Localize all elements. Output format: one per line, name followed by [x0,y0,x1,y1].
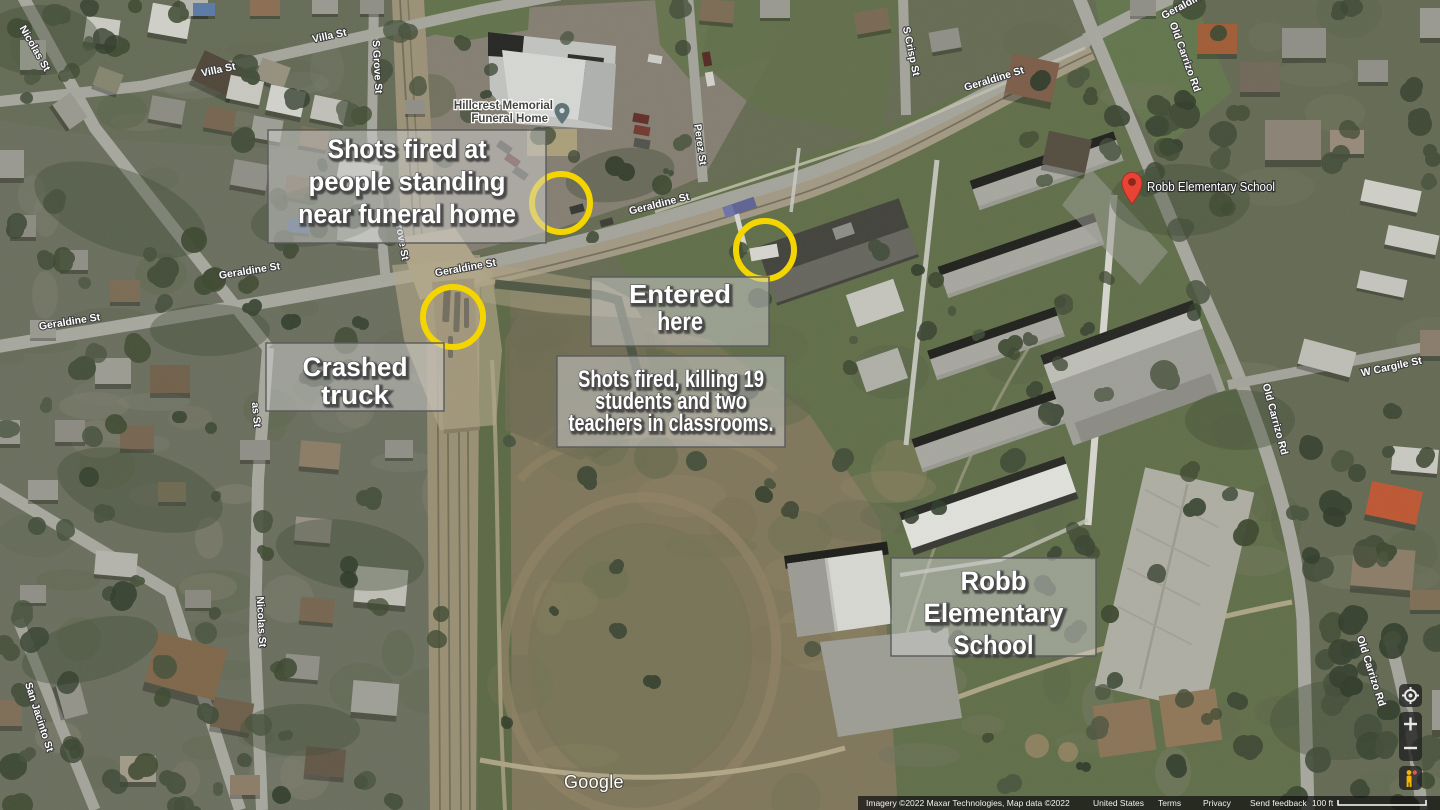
svg-text:100 ft: 100 ft [1312,798,1334,808]
svg-text:Send feedback: Send feedback [1250,798,1307,808]
svg-text:School: School [954,630,1034,660]
svg-text:people standing: people standing [309,167,506,197]
svg-text:near funeral home: near funeral home [298,199,516,229]
svg-text:United States: United States [1093,798,1144,808]
svg-text:Entered: Entered [629,279,731,309]
svg-text:as St: as St [249,402,263,429]
svg-text:Funeral Home: Funeral Home [471,113,548,125]
svg-text:Robb Elementary School: Robb Elementary School [1147,180,1275,194]
svg-text:Crashed: Crashed [303,352,408,382]
svg-text:teachers in classrooms.: teachers in classrooms. [569,410,774,437]
svg-text:Hillcrest Memorial: Hillcrest Memorial [454,100,553,112]
svg-text:Robb: Robb [961,566,1027,596]
svg-text:here: here [657,306,703,336]
svg-text:truck: truck [321,380,390,410]
svg-text:Google: Google [564,772,624,792]
svg-text:Elementary: Elementary [924,598,1064,628]
svg-text:Shots fired at: Shots fired at [328,134,487,164]
svg-text:Imagery ©2022 Maxar Technologi: Imagery ©2022 Maxar Technologies, Map da… [866,798,1070,808]
svg-text:Terms: Terms [1158,798,1181,808]
svg-text:Privacy: Privacy [1203,798,1232,808]
